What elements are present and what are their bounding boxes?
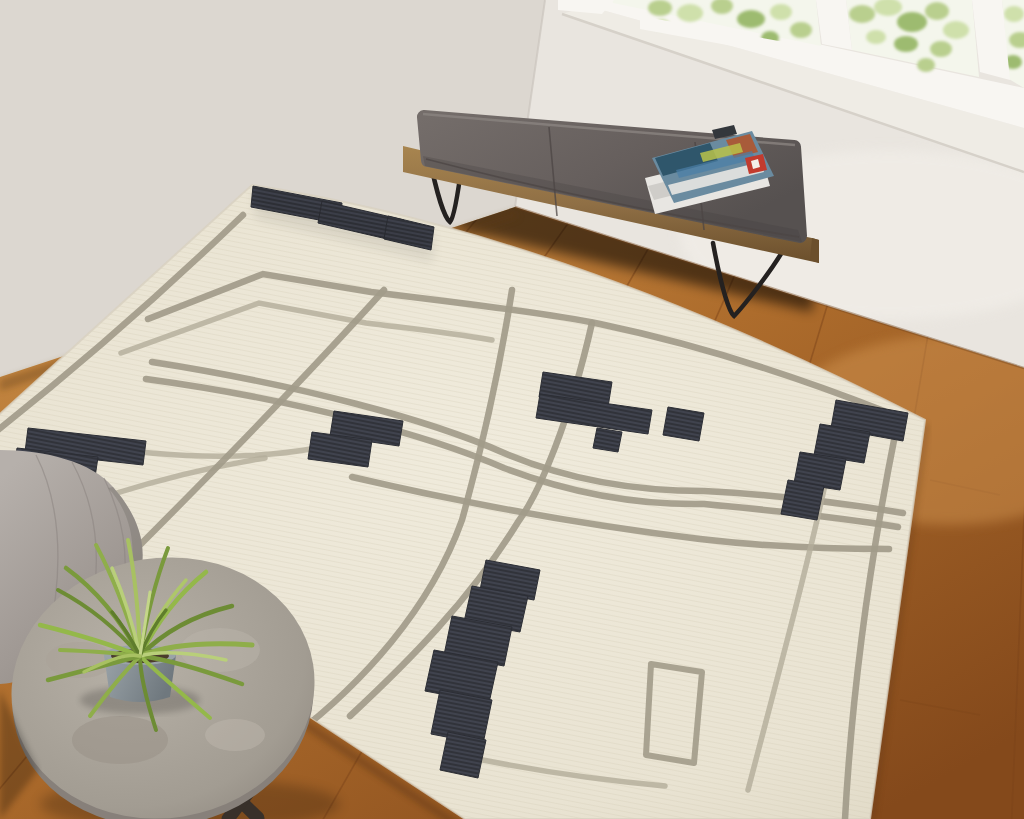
room-photo: Top-down view of a bright room corner: a… bbox=[0, 0, 1024, 819]
room-illustration bbox=[0, 0, 1024, 819]
table-blotch-3 bbox=[205, 719, 265, 751]
